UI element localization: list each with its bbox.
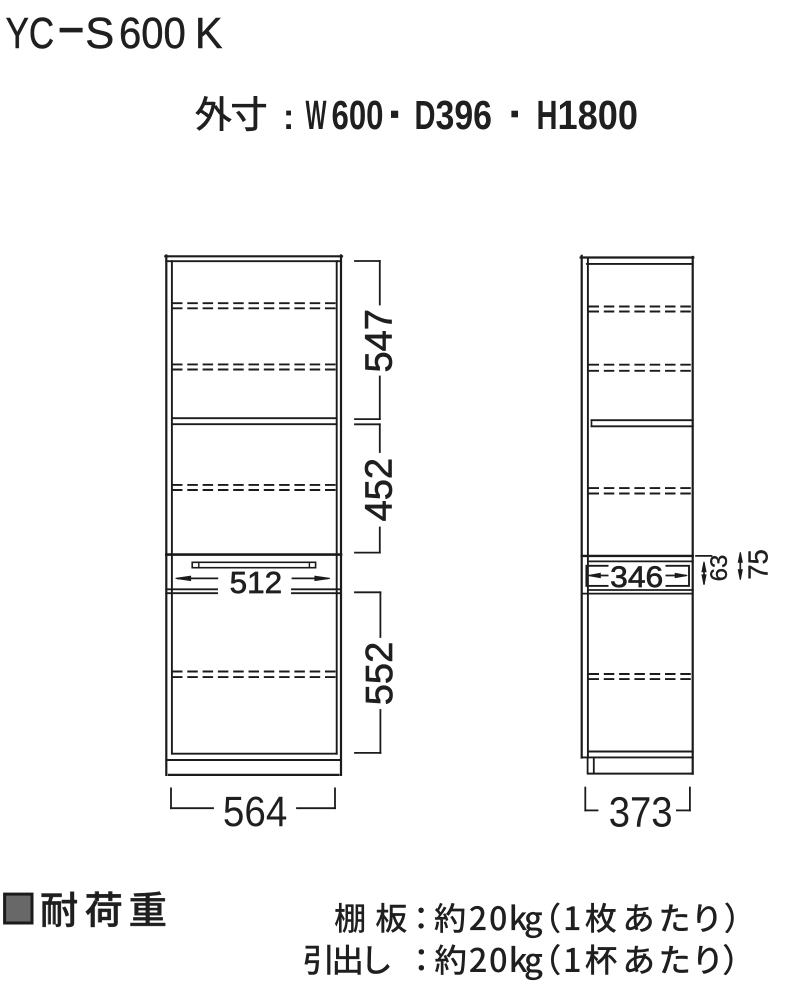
svg-text:63: 63 [706,555,733,582]
svg-text:1800: 1800 [558,92,639,138]
svg-text:D: D [415,92,436,138]
svg-text:S: S [85,9,114,58]
svg-text:346: 346 [610,561,663,594]
svg-text:75: 75 [742,549,773,580]
svg-text:547: 547 [358,309,400,372]
svg-text:396: 396 [436,92,493,138]
svg-text:373: 373 [609,789,673,837]
svg-text:600: 600 [119,9,186,58]
svg-text:512: 512 [230,565,283,600]
svg-text:452: 452 [358,458,400,521]
svg-text:564: 564 [223,789,287,836]
svg-text:K: K [195,9,223,58]
svg-text:H: H [537,92,558,138]
svg-text:W: W [306,92,327,138]
svg-text:600: 600 [332,92,384,138]
svg-text:552: 552 [359,642,401,705]
svg-text:YC: YC [6,9,55,58]
